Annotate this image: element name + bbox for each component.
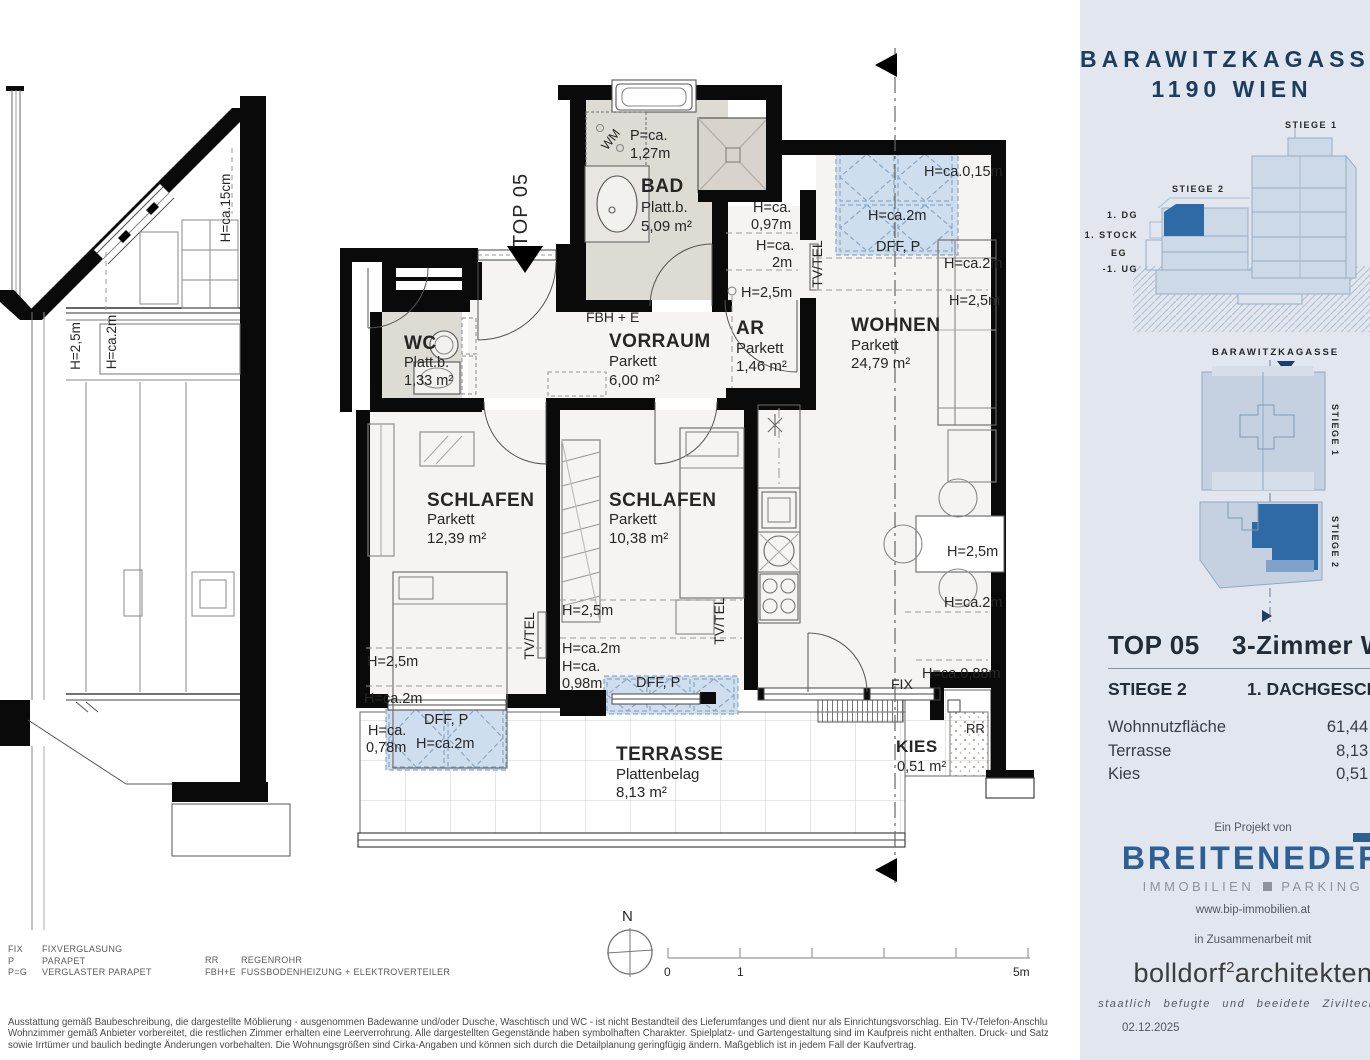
architect-name: bolldorf2architekten	[1080, 958, 1370, 989]
dim-h097-b: 0,97m	[751, 217, 791, 233]
unit-stiege: STIEGE 2	[1108, 679, 1187, 700]
room-name-wohnen: WOHNEN	[851, 315, 941, 336]
stiege2-footprint	[1200, 502, 1322, 588]
rainpipe-symbol	[948, 700, 960, 712]
dim-h098-a: H=ca.	[562, 659, 600, 675]
stiege1-footprint	[1202, 366, 1325, 490]
room-name-kies: KIES	[896, 737, 938, 756]
room-name-schlafen1: SCHLAFEN	[427, 490, 534, 511]
dim-h25-s2: H=2,5m	[562, 603, 613, 619]
room-finish-ar: Parkett	[736, 340, 784, 357]
area-row-label: Wohnnutzfläche	[1108, 718, 1226, 737]
disclaimer-line: sowie Irrtümer und baulich bedingte Ände…	[8, 1040, 1048, 1051]
dim-h098-b: 0,98m	[562, 676, 602, 692]
room-name-vorraum: VORRAUM	[609, 331, 711, 352]
unit-type: 3-Zimmer Whg	[1232, 630, 1370, 661]
brand-sub-parking: PARKING	[1281, 879, 1363, 894]
room-area-ar: 1,46 m²	[736, 358, 787, 375]
elevation-stiege2-label: STIEGE 2	[1172, 184, 1225, 194]
project-intro: Ein Projekt von	[1080, 822, 1370, 834]
dim-parapet-value: 1,27m	[630, 146, 670, 162]
section-arrow-bottom	[875, 858, 897, 882]
architect-name-part2: architekten	[1235, 958, 1370, 988]
dim-h078-b: 0,78m	[366, 740, 406, 756]
dim-fbhe: FBH + E	[586, 309, 639, 325]
floor-label-dg: 1. DG	[1107, 210, 1138, 220]
site-plan-diagram: BARAWITZKAGASSE STIEGE 1 STIEGE 2	[1080, 340, 1370, 630]
dim-h078-a: H=ca.	[368, 723, 406, 739]
stiege2-elevation	[1146, 198, 1250, 270]
dim-h2-wohnen2: H=ca.2m	[944, 256, 1002, 272]
legend-label: REGENROHR	[241, 955, 302, 967]
architect-name-part1: bolldorf	[1134, 958, 1227, 988]
dim-parapet: P=ca.	[630, 128, 667, 144]
room-finish-schlafen1: Parkett	[427, 511, 475, 528]
dim-h2-s1: H=ca.2m	[364, 691, 422, 707]
plan-date: 02.12.2025	[1122, 1022, 1180, 1034]
floor-label-ug: -1. UG	[1102, 264, 1138, 274]
room-name-bad: BAD	[641, 176, 684, 197]
room-area-schlafen1: 12,39 m²	[427, 530, 486, 547]
dim-h2m-b: 2m	[772, 255, 792, 271]
scale-1: 1	[737, 965, 744, 979]
siteplan-stiege2-label: STIEGE 2	[1330, 516, 1340, 569]
legend-abbr: P	[8, 956, 42, 968]
logo-square-icon	[1263, 882, 1272, 891]
elevation-stiege1-label: STIEGE 1	[1285, 120, 1338, 130]
dim-h097-a: H=ca.	[753, 200, 791, 216]
legend-abbr: FBH+E	[205, 967, 241, 979]
disclaimer-line: Wohnzimmer gemäß Anbieter vorbereitet, d…	[8, 1028, 1048, 1039]
north-label: N	[622, 908, 633, 925]
dim-h25-ar: H=2,5m	[741, 285, 792, 301]
dim-dff-s1: DFF, P	[424, 712, 468, 728]
architect-subtitle: staatlich befugte und beeidete Ziviltech…	[1080, 998, 1370, 1010]
room-area-bad: 5,09 m²	[641, 218, 692, 235]
room-area-schlafen2: 10,38 m²	[609, 530, 668, 547]
room-finish-vorraum: Parkett	[609, 353, 657, 370]
dim-tvtel-s2: TV/TEL	[711, 597, 727, 645]
architect-name-sup: 2	[1226, 959, 1235, 976]
disclaimer: Ausstattung gemäß Baubeschreibung, die d…	[8, 1017, 1048, 1051]
legend-abbr: P=G	[8, 967, 42, 979]
room-area-wohnen: 24,79 m²	[851, 355, 910, 372]
north-arrow	[607, 928, 653, 977]
dim-h015: H=ca.0,15m	[924, 164, 1003, 180]
section-dim-h2: H=ca.2m	[104, 315, 119, 369]
room-finish-schlafen2: Parkett	[609, 511, 657, 528]
room-name-terrasse: TERRASSE	[616, 744, 723, 765]
dim-h25-dining: H=2,5m	[947, 544, 998, 560]
dim-h2-s2: H=ca.2m	[562, 641, 620, 657]
scale-5m: 5m	[1013, 965, 1030, 979]
legend-label: FIXVERGLASUNG	[42, 944, 122, 956]
project-title-line1: BARAWITZKAGASSE	[1080, 46, 1370, 73]
room-finish-wc: Platt.b.	[404, 355, 449, 371]
section-arrow-top	[875, 53, 897, 77]
floor-label-eg: EG	[1111, 248, 1127, 258]
legend-right: RRREGENROHR FBH+EFUSSBODENHEIZUNG + ELEK…	[205, 955, 450, 978]
area-row-value: 0,51 m²	[1272, 765, 1370, 784]
area-row-value: 61,44 m²	[1272, 718, 1370, 737]
dim-fix: FIX	[891, 676, 913, 692]
area-row-label: Terrasse	[1108, 742, 1171, 761]
floor-label-stock: 1. STOCK	[1085, 230, 1138, 240]
legend-abbr: FIX	[8, 944, 42, 956]
dim-tvtel-wohnen: TV/TEL	[809, 240, 825, 288]
building-elevation-diagram: STIEGE 1 STIEGE 2 1. DG 1. STOCK EG -1. …	[1080, 110, 1370, 340]
area-row-value: 8,13 m²	[1272, 742, 1370, 761]
project-title-line2: 1190 WIEN	[1080, 76, 1370, 103]
room-area-kies: 0,51 m²	[897, 759, 946, 775]
highlighted-unit-elevation	[1164, 204, 1204, 236]
disclaimer-line: Ausstattung gemäß Baubeschreibung, die d…	[8, 1017, 1048, 1028]
room-area-terrasse: 8,13 m²	[616, 784, 667, 801]
legend-abbr: RR	[205, 955, 241, 967]
dim-h25-s1: H=2,5m	[367, 654, 418, 670]
legend-label: PARAPET	[42, 956, 85, 968]
scale-0: 0	[664, 965, 671, 979]
dim-dff-wohnen: DFF, P	[876, 239, 920, 255]
floorplan-sheet: H=2,5m H=ca.2m H=ca.15cm	[0, 0, 1370, 1060]
building-section-drawing: H=2,5m H=ca.2m H=ca.15cm	[0, 55, 310, 935]
brand-sub-immobilien: IMMOBILIEN	[1143, 879, 1255, 894]
dim-h2-dining: H=ca.2m	[944, 595, 1002, 611]
room-finish-terrasse: Plattenbelag	[616, 766, 699, 783]
legend-label: FUSSBODENHEIZUNG + ELEKTROVERTEILER	[241, 967, 450, 979]
siteplan-stiege1-label: STIEGE 1	[1330, 404, 1340, 457]
dim-dff-s2: DFF, P	[636, 675, 680, 691]
room-finish-wohnen: Parkett	[851, 337, 899, 354]
brand-name: BREITENEDER	[1080, 840, 1370, 877]
room-name-schlafen2: SCHLAFEN	[609, 490, 716, 511]
section-dim-h25: H=2,5m	[68, 322, 83, 370]
siteplan-street-label: BARAWITZKAGASSE	[1212, 347, 1339, 358]
floorplan-drawing: TOP 05 BAD WC VORRAUM AR WOHNEN SCHLAFEN…	[330, 40, 1080, 985]
shower	[698, 118, 768, 192]
room-area-wc: 1,33 m²	[404, 373, 453, 389]
dim-rr: RR	[966, 721, 985, 736]
area-row-label: Kies	[1108, 765, 1140, 784]
divider	[1108, 668, 1370, 669]
room-area-vorraum: 6,00 m²	[609, 372, 660, 389]
entrance-marker-label: TOP 05	[510, 173, 532, 247]
dim-h2-s1b: H=ca.2m	[416, 736, 474, 752]
unit-level: 1. DACHGESCHOSS	[1247, 679, 1370, 700]
cooperation-note: in Zusammenarbeit mit	[1080, 934, 1370, 946]
dim-tvtel-s1: TV/TEL	[521, 612, 537, 660]
room-name-ar: AR	[736, 318, 764, 339]
brand-url: www.bip-immobilien.at	[1080, 904, 1370, 916]
legend-left: FIXFIXVERGLASUNG PPARAPET P=GVERGLASTER …	[8, 944, 152, 979]
brand-subtitle: IMMOBILIENPARKING	[1080, 879, 1370, 894]
dim-h2m-a: H=ca.	[756, 238, 794, 254]
room-finish-bad: Platt.b.	[641, 199, 688, 216]
stiege1-elevation	[1252, 124, 1356, 278]
scale-bar	[668, 948, 1030, 958]
dim-h2-wohnen1: H=ca.2m	[868, 208, 926, 224]
legend-label: VERGLASTER PARAPET	[42, 967, 152, 979]
dim-h088: H=ca.0,88m	[922, 666, 1001, 682]
dim-h25-wohnen: H=2,5m	[949, 293, 1000, 309]
section-dim-h15cm: H=ca.15cm	[218, 174, 233, 243]
unit-number: TOP 05	[1108, 630, 1200, 661]
grill-strip	[818, 700, 903, 722]
room-name-wc: WC	[404, 333, 437, 354]
